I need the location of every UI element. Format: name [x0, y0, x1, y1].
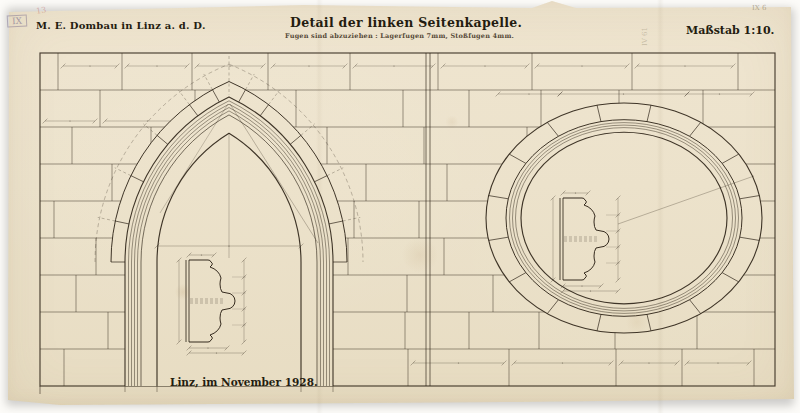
- pencil-mark-side: IV 61: [641, 27, 649, 46]
- pencil-mark-top-left: 13: [35, 5, 46, 15]
- technical-drawing-canvas: [0, 0, 800, 413]
- drawing-subtitle: Fugen sind abzuziehen : Lagerfugen 7mm, …: [285, 32, 505, 40]
- project-label: M. E. Dombau in Linz a. d. D.: [36, 20, 206, 31]
- scanned-drawing-sheet: M. E. Dombau in Linz a. d. D. Detail der…: [0, 0, 800, 413]
- date-label: Linz, im November 1928.: [170, 376, 298, 388]
- pencil-mark-top-right: IX 6: [752, 4, 766, 12]
- drawing-title: Detail der linken Seitenkapelle.: [290, 15, 502, 30]
- scale-label: Maßstab 1:10.: [686, 24, 774, 37]
- archive-stamp: IX: [7, 14, 28, 27]
